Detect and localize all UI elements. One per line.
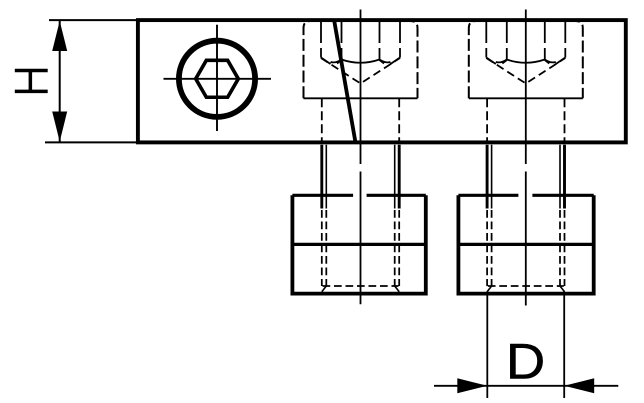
svg-text:D: D (506, 334, 545, 389)
